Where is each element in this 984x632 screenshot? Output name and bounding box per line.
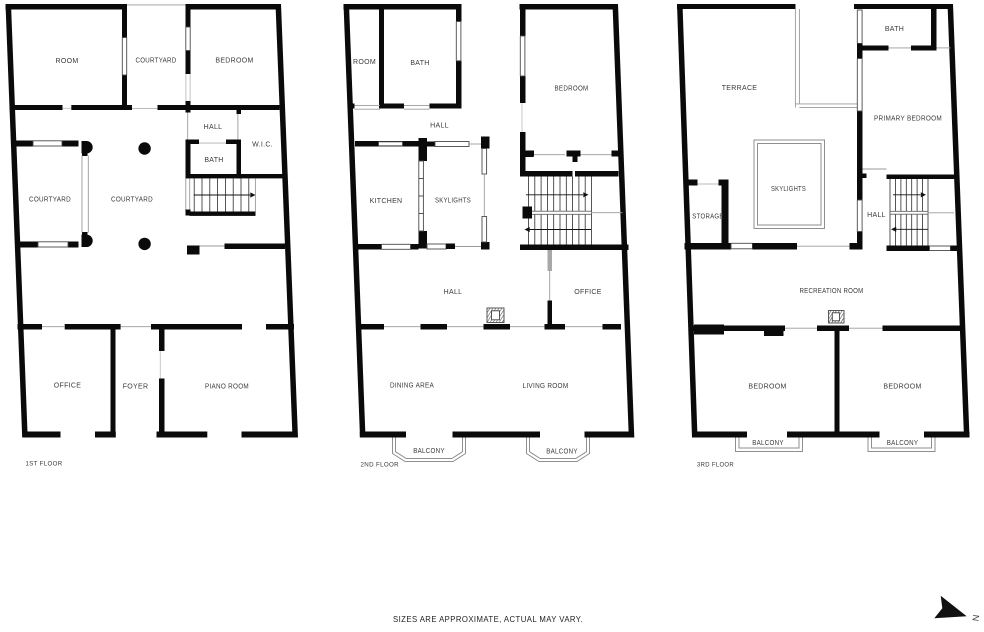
svg-text:HALL: HALL xyxy=(430,123,449,130)
svg-text:3RD FLOOR: 3RD FLOOR xyxy=(697,461,734,468)
svg-text:BEDROOM: BEDROOM xyxy=(748,383,786,390)
svg-text:BALCONY: BALCONY xyxy=(546,449,578,456)
svg-text:OFFICE: OFFICE xyxy=(574,289,601,296)
svg-text:2ND FLOOR: 2ND FLOOR xyxy=(361,462,400,469)
svg-text:RECREATION ROOM: RECREATION ROOM xyxy=(800,288,864,295)
svg-text:COURTYARD: COURTYARD xyxy=(29,197,71,204)
svg-text:BALCONY: BALCONY xyxy=(413,448,445,455)
svg-text:W.I.C.: W.I.C. xyxy=(252,142,273,149)
svg-text:OFFICE: OFFICE xyxy=(54,383,81,390)
svg-text:KITCHEN: KITCHEN xyxy=(370,198,403,205)
svg-text:HALL: HALL xyxy=(204,124,223,131)
svg-text:BATH: BATH xyxy=(204,157,223,164)
svg-text:BALCONY: BALCONY xyxy=(887,440,919,447)
svg-text:BEDROOM: BEDROOM xyxy=(883,383,921,390)
svg-text:TERRACE: TERRACE xyxy=(722,85,758,92)
svg-text:1ST FLOOR: 1ST FLOOR xyxy=(26,461,63,468)
svg-text:BATH: BATH xyxy=(885,26,904,33)
svg-text:BEDROOM: BEDROOM xyxy=(215,58,253,65)
svg-text:BEDROOM: BEDROOM xyxy=(555,86,589,93)
svg-text:HALL: HALL xyxy=(444,289,463,296)
svg-text:HALL: HALL xyxy=(867,212,886,219)
svg-text:SIZES ARE APPROXIMATE, ACTUAL: SIZES ARE APPROXIMATE, ACTUAL MAY VARY. xyxy=(393,615,583,624)
svg-text:SKYLIGHTS: SKYLIGHTS xyxy=(771,186,806,193)
svg-text:ROOM: ROOM xyxy=(353,59,376,66)
svg-text:DINING AREA: DINING AREA xyxy=(390,383,434,390)
svg-text:PRIMARY BEDROOM: PRIMARY BEDROOM xyxy=(874,116,942,123)
svg-text:PIANO ROOM: PIANO ROOM xyxy=(205,384,249,391)
svg-text:FOYER: FOYER xyxy=(123,384,149,391)
svg-text:BATH: BATH xyxy=(410,60,429,67)
svg-text:STORAGE: STORAGE xyxy=(692,214,724,221)
svg-text:SKYLIGHTS: SKYLIGHTS xyxy=(435,198,471,205)
svg-text:ROOM: ROOM xyxy=(56,58,79,65)
svg-text:BALCONY: BALCONY xyxy=(752,440,784,447)
svg-text:COURTYARD: COURTYARD xyxy=(136,58,177,65)
svg-text:COURTYARD: COURTYARD xyxy=(111,197,153,204)
svg-text:LIVING ROOM: LIVING ROOM xyxy=(523,383,569,390)
